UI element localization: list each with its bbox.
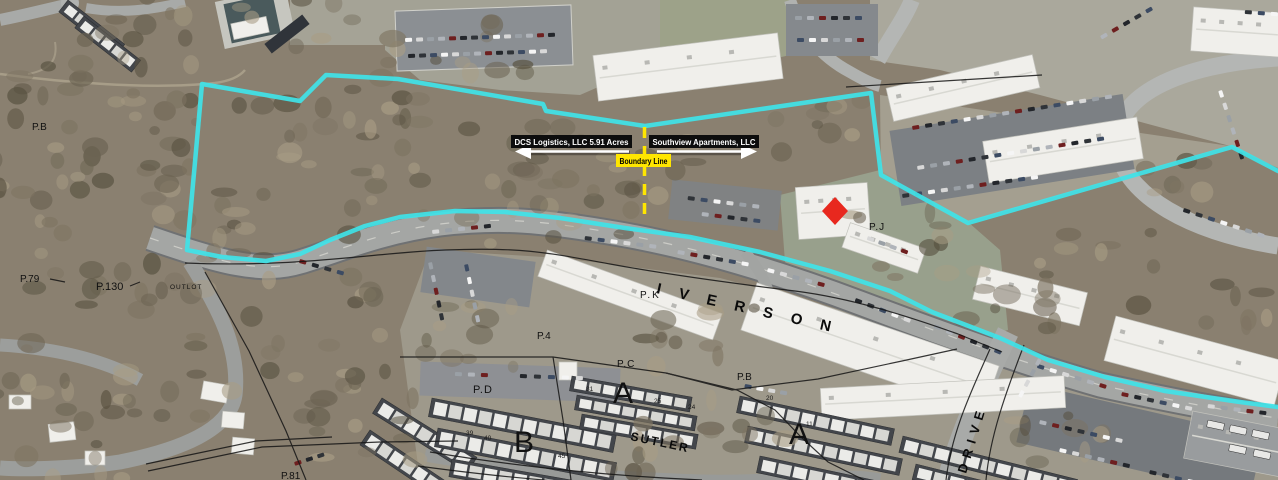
southview-label-text: Southview Apartments, LLC xyxy=(653,137,756,147)
house-number-40: 40 xyxy=(484,435,492,442)
parcel-label-pb-c: P.B xyxy=(737,372,752,383)
aerial-imagery xyxy=(0,0,1278,480)
boundary-label-text: Boundary Line xyxy=(620,156,668,166)
house-number-45: 45 xyxy=(558,453,566,460)
parcel-label-pb-nw: P.B xyxy=(32,122,47,133)
parcel-label-p4: P.4 xyxy=(537,331,551,342)
house-number-20: 20 xyxy=(766,395,774,402)
block-label-b: B xyxy=(514,426,534,459)
house-number-24: 24 xyxy=(688,404,696,411)
parcel-label-pd: P.D xyxy=(473,384,493,396)
annotation-dcs-label: DCS Logistics, LLC 5.91 Acres xyxy=(511,135,632,148)
dcs-label-text: DCS Logistics, LLC 5.91 Acres xyxy=(515,137,629,147)
house-number-31: 31 xyxy=(586,386,594,393)
aerial-map: DCS Logistics, LLC 5.91 Acres Southview … xyxy=(0,0,1278,480)
house-number-25: 25 xyxy=(654,398,662,405)
house-number-11: 11 xyxy=(806,421,813,428)
parcel-label-outlot: OUTLOT xyxy=(170,284,202,291)
annotation-boundary-label: Boundary Line xyxy=(616,154,671,167)
block-label-a-west: A xyxy=(613,377,633,410)
parcel-label-pc: P.C xyxy=(617,359,635,370)
house-number-39: 39 xyxy=(466,430,474,437)
annotation-southview-label: Southview Apartments, LLC xyxy=(649,135,759,148)
parcel-label-p79: P.79 xyxy=(20,274,40,285)
parcel-label-p81: P.81 xyxy=(281,471,301,480)
parcel-label-p130: P.130 xyxy=(96,281,123,293)
parcel-label-pj: P.J xyxy=(869,222,885,233)
